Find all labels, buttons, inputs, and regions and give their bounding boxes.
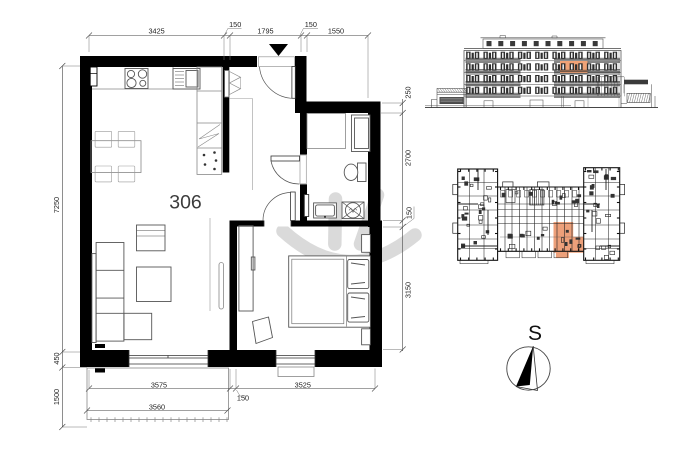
svg-text:7250: 7250	[52, 197, 61, 213]
svg-text:250: 250	[404, 86, 413, 98]
svg-text:3525: 3525	[295, 380, 311, 389]
svg-text:150: 150	[405, 207, 414, 219]
svg-text:3425: 3425	[148, 26, 164, 35]
svg-text:1550: 1550	[328, 26, 344, 35]
svg-text:150: 150	[305, 20, 317, 29]
svg-text:3575: 3575	[151, 380, 167, 389]
svg-text:150: 150	[237, 394, 249, 403]
svg-text:450: 450	[52, 352, 61, 364]
svg-text:306: 306	[169, 192, 202, 214]
svg-text:3150: 3150	[404, 282, 413, 298]
svg-text:150: 150	[229, 20, 241, 29]
svg-text:2700: 2700	[404, 150, 413, 166]
svg-text:S: S	[528, 322, 542, 345]
svg-text:1795: 1795	[257, 26, 273, 35]
svg-text:1500: 1500	[52, 389, 61, 405]
svg-text:3560: 3560	[149, 402, 165, 411]
